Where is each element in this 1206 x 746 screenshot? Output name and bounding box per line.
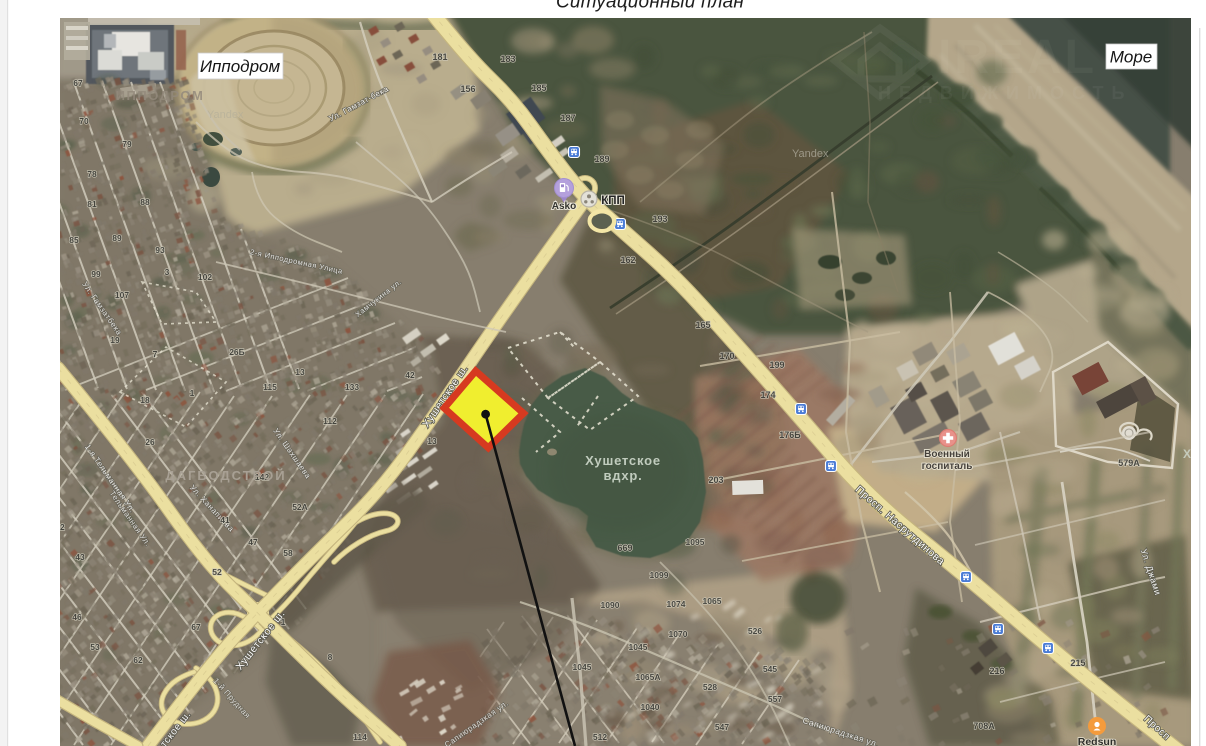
svg-text:1095: 1095 xyxy=(686,537,705,547)
svg-text:Море: Море xyxy=(1110,48,1153,67)
svg-text:13: 13 xyxy=(295,367,305,377)
svg-text:1040: 1040 xyxy=(641,702,660,712)
svg-text:70: 70 xyxy=(79,116,89,126)
svg-text:526: 526 xyxy=(748,626,762,636)
svg-text:НЕДВИЖИМОСТЬ: НЕДВИЖИМОСТЬ xyxy=(878,83,1132,103)
svg-text:42: 42 xyxy=(405,370,415,380)
svg-text:1074: 1074 xyxy=(667,599,686,609)
svg-text:133: 133 xyxy=(345,382,359,392)
svg-text:99: 99 xyxy=(91,269,101,279)
svg-text:46: 46 xyxy=(72,612,82,622)
svg-text:512: 512 xyxy=(593,732,607,742)
svg-text:IREAL: IREAL xyxy=(938,31,1097,84)
svg-text:162: 162 xyxy=(620,255,635,265)
svg-text:3: 3 xyxy=(165,267,170,277)
svg-text:78: 78 xyxy=(87,169,97,179)
svg-text:1045: 1045 xyxy=(573,662,592,672)
svg-text:93: 93 xyxy=(155,245,165,255)
svg-text:13: 13 xyxy=(427,436,437,446)
svg-text:8: 8 xyxy=(328,652,333,662)
svg-text:ДАГВОДСТРОЙ: ДАГВОДСТРОЙ xyxy=(165,468,286,483)
svg-text:7: 7 xyxy=(153,349,158,359)
svg-text:53: 53 xyxy=(90,642,100,652)
svg-text:88: 88 xyxy=(140,197,150,207)
svg-text:114: 114 xyxy=(353,732,367,742)
svg-text:Redsun: Redsun xyxy=(1078,736,1117,746)
svg-text:528: 528 xyxy=(703,682,717,692)
svg-text:216: 216 xyxy=(989,666,1004,676)
svg-text:85: 85 xyxy=(69,235,79,245)
svg-text:170: 170 xyxy=(719,351,734,361)
svg-text:102: 102 xyxy=(198,272,212,282)
svg-text:26Б: 26Б xyxy=(229,347,245,357)
svg-text:189: 189 xyxy=(594,154,609,164)
svg-text:203: 203 xyxy=(708,475,723,485)
svg-text:115: 115 xyxy=(263,382,277,392)
svg-text:579А: 579А xyxy=(1118,458,1140,468)
svg-text:госпиталь: госпиталь xyxy=(922,461,973,472)
svg-text:62: 62 xyxy=(133,655,143,665)
svg-text:43: 43 xyxy=(75,552,85,562)
svg-text:67: 67 xyxy=(73,78,83,88)
svg-text:1070: 1070 xyxy=(669,629,688,639)
svg-text:58: 58 xyxy=(283,548,293,558)
svg-text:1: 1 xyxy=(281,617,286,627)
svg-text:41: 41 xyxy=(220,515,230,525)
svg-text:547: 547 xyxy=(715,722,729,732)
svg-text:1099: 1099 xyxy=(650,570,669,580)
svg-text:183: 183 xyxy=(500,54,515,64)
svg-text:1065А: 1065А xyxy=(635,672,660,682)
svg-text:52А: 52А xyxy=(292,502,308,512)
svg-text:215: 215 xyxy=(1070,658,1085,668)
svg-text:193: 193 xyxy=(652,214,667,224)
svg-text:Asko: Asko xyxy=(552,201,576,212)
svg-text:176Б: 176Б xyxy=(779,430,801,440)
svg-text:107: 107 xyxy=(115,290,129,300)
svg-text:174: 174 xyxy=(760,390,775,400)
svg-text:156: 156 xyxy=(460,84,475,94)
svg-text:112: 112 xyxy=(323,416,337,426)
svg-text:1090: 1090 xyxy=(601,600,620,610)
svg-text:47: 47 xyxy=(248,537,258,547)
svg-text:19: 19 xyxy=(110,335,120,345)
svg-text:1045: 1045 xyxy=(629,642,648,652)
svg-text:185: 185 xyxy=(531,83,546,93)
svg-text:Ипподром: Ипподром xyxy=(200,57,281,76)
svg-text:Хушетское: Хушетское xyxy=(585,453,661,468)
svg-text:52: 52 xyxy=(212,567,222,577)
svg-text:вдхр.: вдхр. xyxy=(603,468,642,483)
svg-text:Ситуационный план: Ситуационный план xyxy=(556,0,744,13)
svg-text:18: 18 xyxy=(140,395,150,405)
svg-text:Военный: Военный xyxy=(924,449,970,460)
svg-text:669: 669 xyxy=(617,543,632,553)
svg-text:26: 26 xyxy=(145,437,155,447)
svg-text:708А: 708А xyxy=(973,721,995,731)
svg-text:Yandex: Yandex xyxy=(792,148,829,160)
svg-text:67: 67 xyxy=(191,622,201,632)
svg-text:181: 181 xyxy=(432,52,447,62)
svg-text:187: 187 xyxy=(560,113,575,123)
svg-text:79: 79 xyxy=(122,139,132,149)
svg-text:89: 89 xyxy=(112,233,122,243)
svg-text:1: 1 xyxy=(190,388,195,398)
svg-text:165: 165 xyxy=(695,320,710,330)
svg-text:81: 81 xyxy=(87,199,97,209)
svg-text:557: 557 xyxy=(768,694,782,704)
svg-text:ИППОДРОМ: ИППОДРОМ xyxy=(116,88,205,103)
svg-text:1065: 1065 xyxy=(703,596,722,606)
svg-text:КПП: КПП xyxy=(601,195,625,207)
svg-text:199: 199 xyxy=(769,360,784,370)
svg-text:Yandex: Yandex xyxy=(207,109,244,121)
svg-text:545: 545 xyxy=(763,664,777,674)
